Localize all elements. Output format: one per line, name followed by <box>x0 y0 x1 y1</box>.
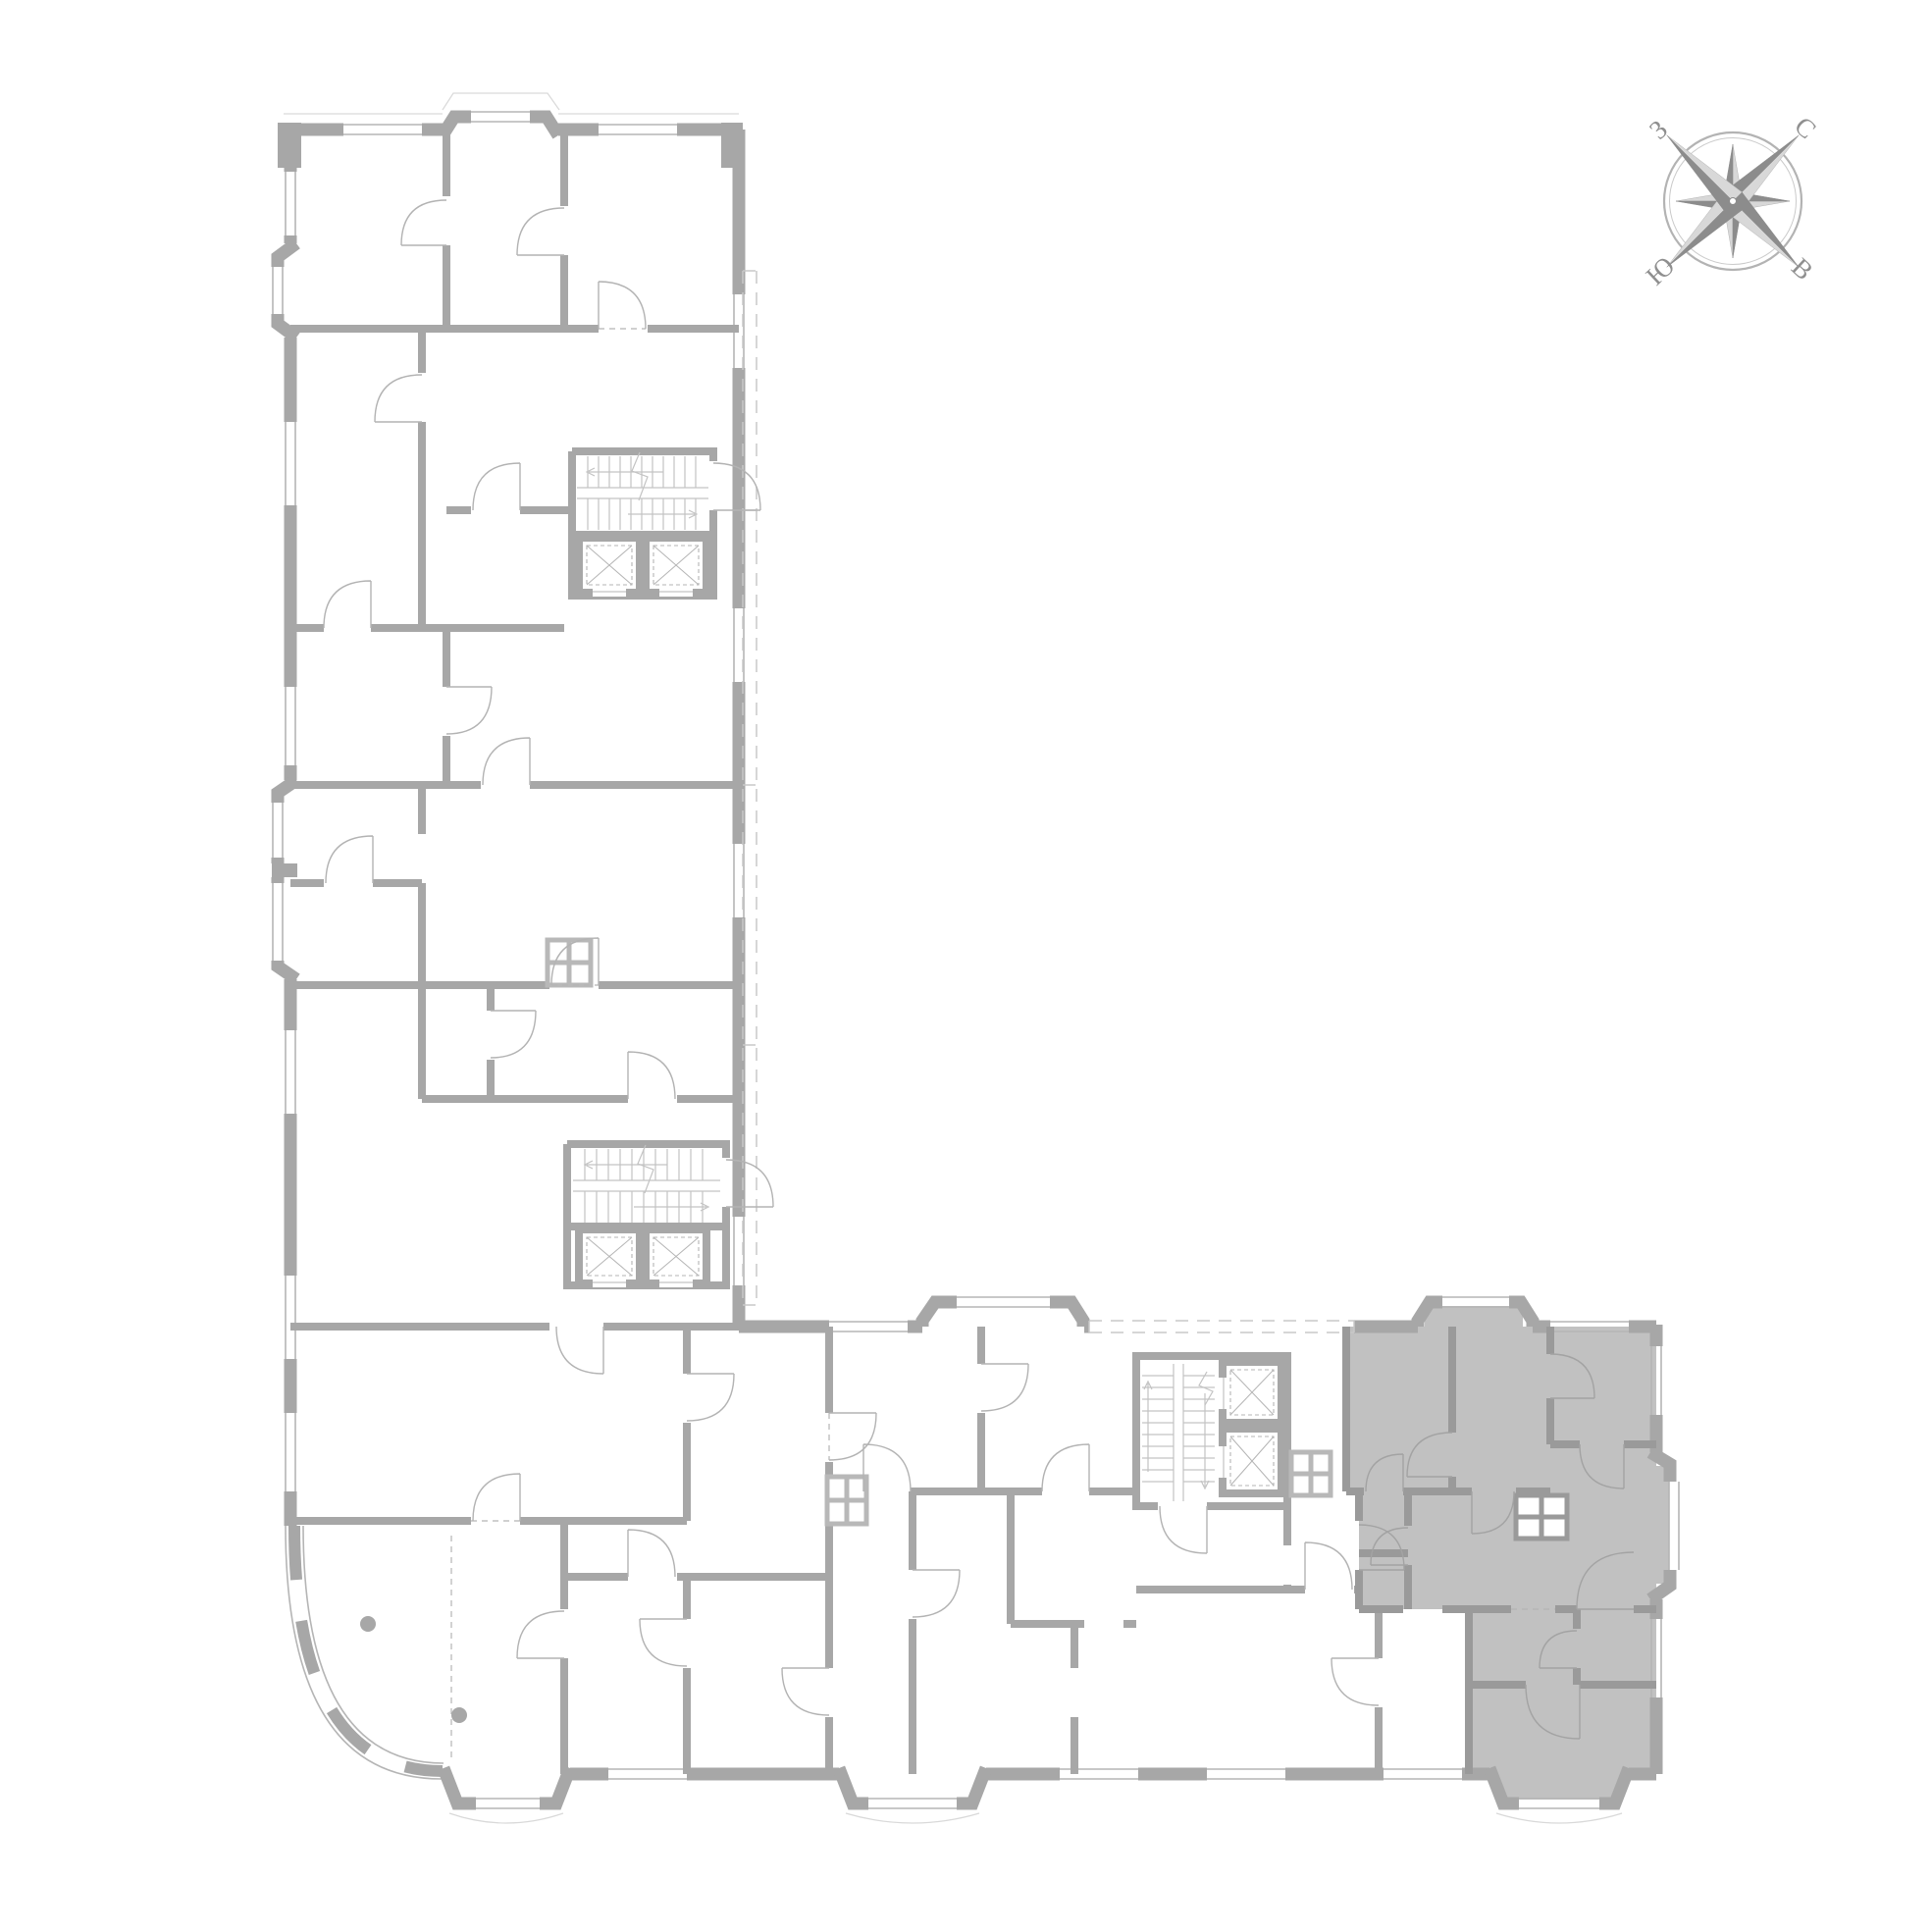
staircase-core-2 <box>573 1145 720 1223</box>
compass-south-label: Ю <box>1641 251 1681 291</box>
elevator-shaft <box>646 1229 706 1287</box>
elevator-shaft <box>579 538 640 597</box>
elevator-shaft <box>1219 1429 1281 1493</box>
balcony-dashed-lines <box>743 271 1354 1332</box>
interior-walls <box>290 130 1379 1774</box>
staircase-core-1 <box>577 452 708 530</box>
elevator-shaft <box>579 1229 640 1287</box>
compass-west-label: З <box>1644 114 1673 144</box>
floor-plan-svg: С В Ю З <box>0 0 1932 1932</box>
floor-plan-page: С В Ю З <box>0 0 1932 1932</box>
staircase-core-3 <box>1142 1364 1215 1501</box>
elevator-shaft <box>1219 1362 1281 1423</box>
elevator-shaft <box>646 538 706 597</box>
compass-rose-icon: С В Ю З <box>1641 111 1822 291</box>
